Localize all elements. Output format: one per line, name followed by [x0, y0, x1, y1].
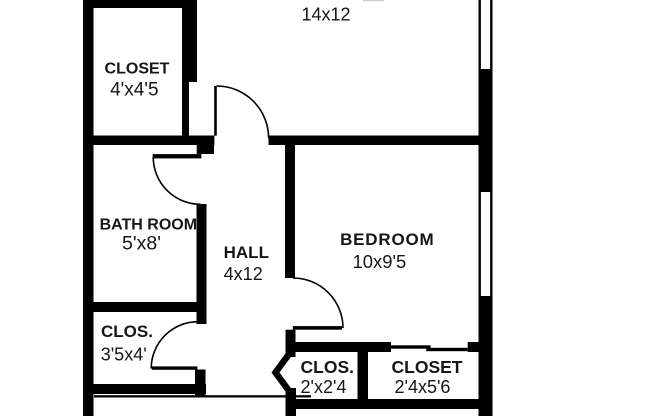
svg-text:5'x8': 5'x8'	[122, 232, 161, 254]
svg-text:14x12: 14x12	[301, 5, 350, 25]
svg-text:CLOSET: CLOSET	[105, 61, 170, 78]
svg-text:4'x4'5: 4'x4'5	[110, 80, 158, 101]
svg-text:BEDROOM: BEDROOM	[340, 230, 434, 249]
svg-text:10x9'5: 10x9'5	[353, 251, 407, 272]
svg-text:HALL: HALL	[224, 243, 269, 262]
svg-text:CLOS.: CLOS.	[301, 357, 354, 377]
svg-text:BATH ROOM: BATH ROOM	[100, 217, 197, 234]
svg-text:CLOS.: CLOS.	[101, 322, 153, 341]
svg-text:3'5x4': 3'5x4'	[101, 345, 147, 365]
svg-text:4x12: 4x12	[224, 264, 263, 284]
svg-text:2'x2'4: 2'x2'4	[301, 377, 347, 397]
svg-text:2'4x5'6: 2'4x5'6	[395, 377, 451, 397]
svg-text:CLOSET: CLOSET	[392, 357, 463, 377]
